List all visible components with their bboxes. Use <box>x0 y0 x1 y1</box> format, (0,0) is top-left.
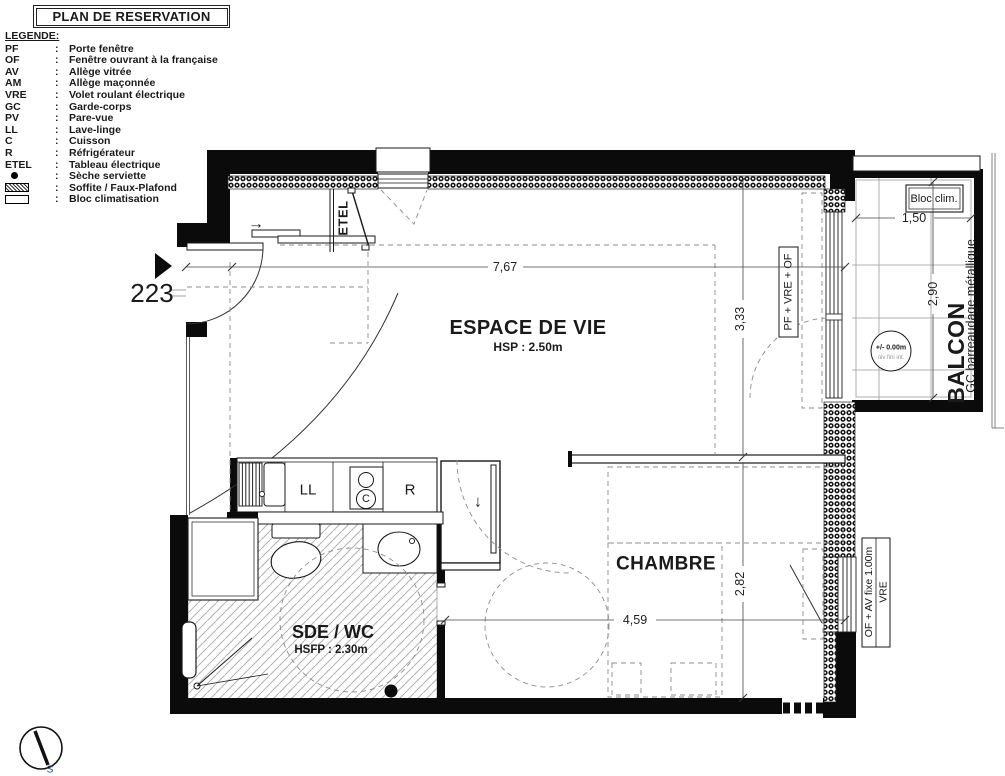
bedroom-window-tag2: VRE <box>878 581 890 603</box>
towel-radiator <box>182 622 196 678</box>
balcony-exterior-sill <box>853 156 980 171</box>
svg-text:7,67: 7,67 <box>493 260 517 274</box>
window-soffit-dashed <box>802 193 822 408</box>
towel-dryer-dot-icon <box>385 685 398 698</box>
svg-text:2,82: 2,82 <box>733 572 747 596</box>
svg-text:4,59: 4,59 <box>623 613 647 627</box>
entry-arrow-icon <box>155 253 172 279</box>
bath-north-wall <box>230 512 443 524</box>
dim-living-depth: 3,33 <box>733 176 747 461</box>
level-value: +/- 0.00m <box>876 345 906 352</box>
slide-direction-arrow-icon: ↓ <box>474 494 482 511</box>
wall-bath-east-lower <box>437 623 445 700</box>
floor-plan: Bloc clim. +/- 0.00m niv fini int. BALCO… <box>0 0 1005 776</box>
closet-sliding-panel <box>278 236 375 243</box>
svg-text:1,50: 1,50 <box>902 211 926 225</box>
bedroom: CHAMBRE <box>457 451 845 697</box>
bedroom-window-tag: OF + AV fixe 1.00m <box>863 546 875 637</box>
toilet-tank <box>272 524 320 538</box>
washer-label: LL <box>300 482 317 499</box>
compass-south-label: S <box>47 765 54 776</box>
balcony-door-window: PF + VRE + OF <box>750 193 842 408</box>
washbasin <box>378 532 420 566</box>
entry-closet: → ETEL <box>248 188 375 252</box>
bath-closet <box>188 518 258 600</box>
bedroom-soffit-dashed <box>608 467 843 543</box>
window-swing-dashed <box>381 190 427 224</box>
pillow-dashed <box>612 663 641 695</box>
slide-direction-arrow-icon: → <box>248 216 264 233</box>
pillow-dashed <box>671 663 716 695</box>
entry-door-swing <box>187 247 263 324</box>
dim-bedroom-width: 4,59 <box>441 613 849 627</box>
sliding-door-leaf <box>491 465 496 553</box>
wall-bottom <box>170 698 782 714</box>
bathroom-ceiling: HSFP : 2.30m <box>294 644 367 656</box>
wall-left-lower <box>170 515 188 710</box>
wall-entry-step <box>177 150 230 247</box>
sink-tap <box>259 491 264 496</box>
sink-drainer <box>239 463 262 506</box>
electrical-panel-label: ETEL <box>336 200 351 235</box>
bathroom-name: SDE / WC <box>292 622 374 642</box>
wall-top-right <box>428 150 855 174</box>
wall-right-lower <box>836 632 856 702</box>
fridge-label: R <box>405 482 416 499</box>
kitchen: LL C R <box>237 458 437 512</box>
compass: S <box>20 727 62 776</box>
cooktop-label: C <box>362 493 370 505</box>
dim-living-width: 7,67 <box>182 260 849 274</box>
unit-number: 223 <box>130 278 173 308</box>
level-note: niv fini int. <box>878 355 905 361</box>
basin-tap <box>409 538 414 543</box>
balcony-railing-label: GC barreaudage métallique <box>964 239 978 393</box>
svg-text:3,33: 3,33 <box>733 307 747 331</box>
bedroom-name: CHAMBRE <box>616 554 716 575</box>
bedroom-north-wall <box>570 455 845 463</box>
top-window <box>376 148 430 224</box>
dim-bedroom-depth: 2,82 <box>733 463 747 702</box>
floor-plan-page: { "title": "PLAN DE RESERVATION", "legen… <box>0 0 1005 776</box>
living-ceiling: HSP : 2.50m <box>493 340 562 354</box>
kitchen-sink <box>264 463 285 506</box>
turning-circle-dashed <box>485 563 609 687</box>
window-open-leaf <box>790 565 822 623</box>
living-name: ESPACE DE VIE <box>449 317 606 339</box>
bedroom-sliding-door: ↓ <box>441 461 500 570</box>
svg-text:2,90: 2,90 <box>926 282 940 306</box>
balcony-door-tag: PF + VRE + OF <box>783 253 795 330</box>
ac-unit-label: Bloc clim. <box>910 193 957 205</box>
wall-top-left <box>210 150 378 174</box>
entry-door-leaf <box>187 243 263 250</box>
dim-balcony-width: 1,50 <box>852 211 975 225</box>
